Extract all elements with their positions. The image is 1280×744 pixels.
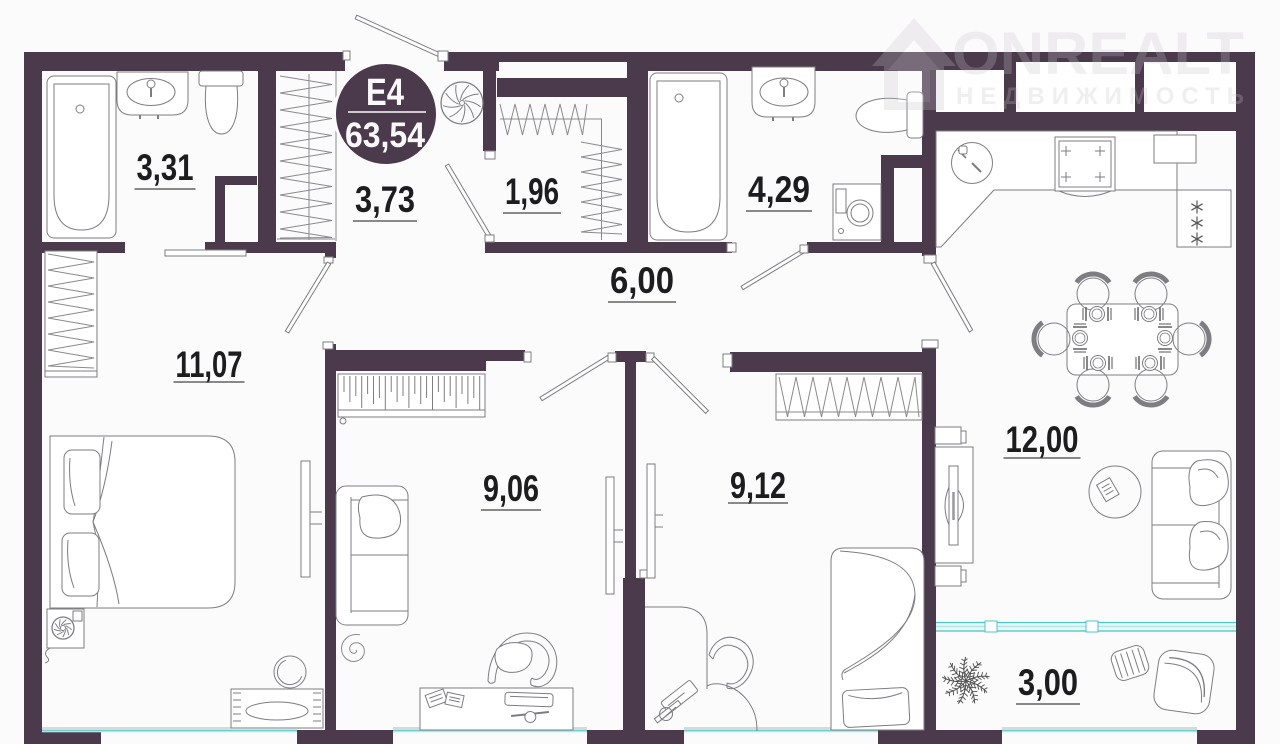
svg-text:9,06: 9,06 (483, 468, 539, 509)
svg-text:1,96: 1,96 (505, 171, 559, 212)
svg-text:11,07: 11,07 (176, 344, 243, 385)
svg-text:3,31: 3,31 (137, 147, 194, 188)
svg-text:63,54: 63,54 (345, 116, 425, 155)
svg-text:6,00: 6,00 (610, 260, 674, 301)
svg-text:ONREALT: ONREALT (952, 20, 1244, 87)
svg-text:4,29: 4,29 (748, 169, 810, 210)
svg-text:3,00: 3,00 (1018, 662, 1078, 703)
svg-text:9,12: 9,12 (730, 465, 786, 506)
svg-text:12,00: 12,00 (1006, 419, 1079, 460)
svg-text:Е4: Е4 (366, 72, 404, 114)
svg-text:3,73: 3,73 (355, 179, 415, 220)
